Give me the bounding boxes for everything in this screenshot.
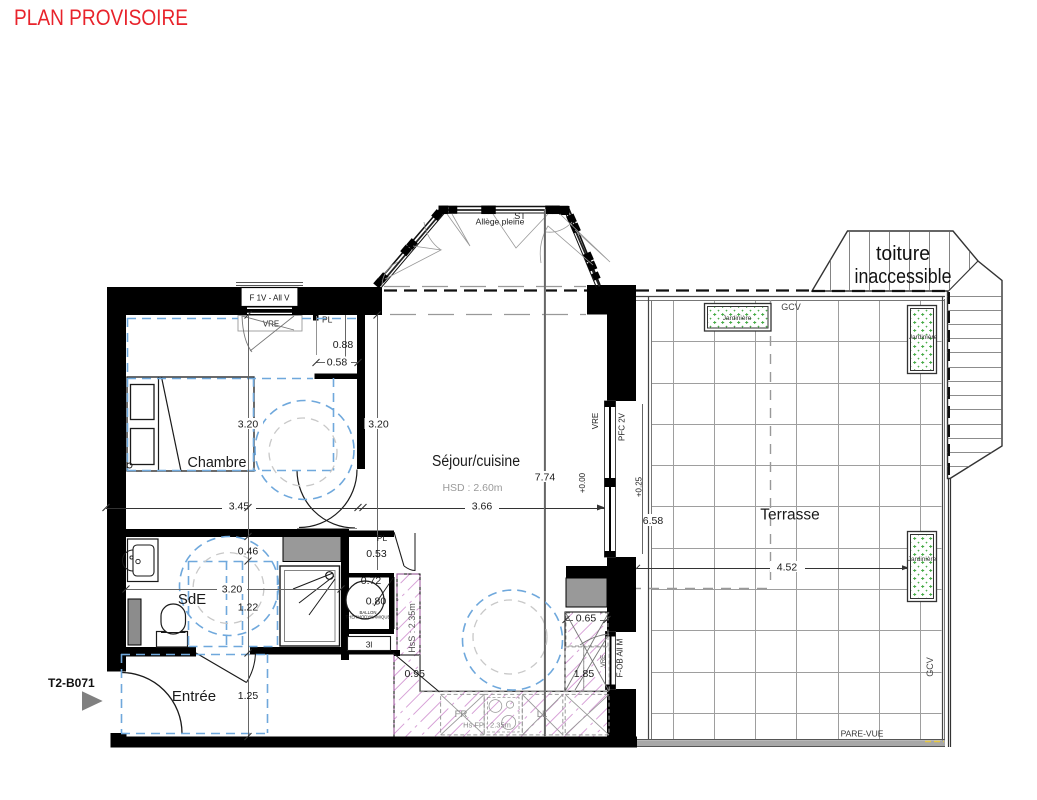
svg-text:PARE-VUE: PARE-VUE	[841, 729, 884, 739]
svg-text:Entrée: Entrée	[172, 688, 216, 705]
svg-text:inaccessible: inaccessible	[855, 266, 952, 288]
svg-text:HsS : 2.35m: HsS : 2.35m	[407, 603, 417, 653]
svg-text:4.52: 4.52	[777, 562, 798, 574]
svg-text:3.20: 3.20	[368, 419, 389, 431]
svg-text:7.74: 7.74	[535, 472, 556, 484]
svg-text:+0.25: +0.25	[635, 476, 644, 497]
svg-text:Jardinière: Jardinière	[723, 315, 752, 322]
svg-text:1.85: 1.85	[574, 668, 595, 680]
svg-text:THERMODYNAMIQUE: THERMODYNAMIQUE	[346, 615, 391, 620]
svg-text:0.88: 0.88	[333, 339, 354, 351]
svg-text:GCV: GCV	[781, 302, 801, 312]
svg-text:0.95: 0.95	[404, 668, 425, 680]
svg-text:3.20: 3.20	[238, 419, 259, 431]
svg-text:0.46: 0.46	[238, 546, 259, 558]
svg-text:F 1V - All V: F 1V - All V	[249, 294, 290, 303]
svg-text:3.66: 3.66	[472, 501, 493, 513]
svg-text:6.58: 6.58	[643, 515, 664, 527]
svg-text:SdE: SdE	[178, 591, 206, 608]
svg-text:+0.00: +0.00	[578, 472, 587, 493]
svg-text:Hs FP : 2.35m: Hs FP : 2.35m	[463, 721, 511, 730]
svg-text:LL: LL	[537, 709, 548, 720]
svg-text:1.22: 1.22	[238, 602, 259, 614]
svg-text:Chambre: Chambre	[188, 454, 247, 471]
svg-text:toiture: toiture	[876, 243, 930, 265]
svg-text:3.45: 3.45	[229, 501, 250, 513]
svg-text:F-OB All M: F-OB All M	[616, 638, 625, 677]
svg-text:1.25: 1.25	[238, 690, 259, 702]
svg-text:Séjour/cuisine: Séjour/cuisine	[432, 453, 520, 470]
svg-text:PL: PL	[322, 315, 333, 325]
svg-text:0.58: 0.58	[327, 357, 348, 369]
svg-text:3l: 3l	[366, 640, 373, 650]
svg-text:VRE: VRE	[601, 655, 607, 667]
svg-text:3.20: 3.20	[222, 584, 243, 596]
svg-text:HSD : 2.60m: HSD : 2.60m	[442, 482, 502, 494]
svg-text:PLAN PROVISOIRE: PLAN PROVISOIRE	[14, 5, 188, 30]
svg-text:Terrasse: Terrasse	[760, 507, 819, 524]
svg-text:VRE: VRE	[591, 413, 600, 429]
svg-text:FR: FR	[455, 709, 468, 720]
svg-text:GCV: GCV	[925, 657, 935, 677]
svg-text:0.80: 0.80	[366, 596, 387, 608]
svg-text:0.53: 0.53	[366, 548, 387, 560]
svg-text:Allège pleine: Allège pleine	[476, 217, 525, 227]
svg-text:0.65: 0.65	[576, 613, 597, 625]
svg-text:Jardinière: Jardinière	[909, 334, 938, 341]
svg-text:Jardinière: Jardinière	[908, 556, 937, 563]
svg-text:T2-B071: T2-B071	[48, 676, 95, 690]
svg-text:PL: PL	[377, 533, 388, 543]
svg-text:0.72: 0.72	[361, 575, 382, 587]
svg-text:PFC 2V: PFC 2V	[618, 412, 627, 441]
